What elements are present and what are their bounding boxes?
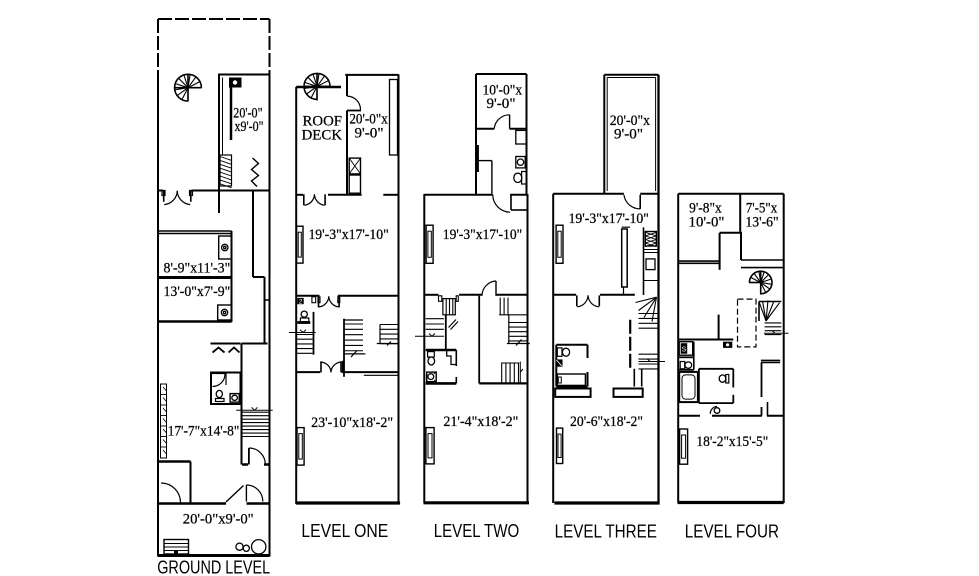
svg-text:19'-3"x17'-10": 19'-3"x17'-10" <box>569 211 649 227</box>
svg-text:LEVEL ONE: LEVEL ONE <box>301 521 388 541</box>
svg-text:13'-6": 13'-6" <box>745 215 778 231</box>
svg-text:LEVEL TWO: LEVEL TWO <box>434 521 520 541</box>
svg-text:19'-3"x17'-10": 19'-3"x17'-10" <box>443 227 522 243</box>
svg-text:x9'-0": x9'-0" <box>235 119 264 135</box>
svg-text:23'-10"x18'-2": 23'-10"x18'-2" <box>311 415 393 431</box>
svg-text:18'-2"x15'-5": 18'-2"x15'-5" <box>696 434 768 450</box>
svg-text:21'-4"x18'-2": 21'-4"x18'-2" <box>443 414 518 430</box>
svg-text:19'-3"x17'-10": 19'-3"x17'-10" <box>308 227 388 243</box>
svg-text:DECK: DECK <box>302 127 343 143</box>
svg-text:S: S <box>682 347 687 354</box>
svg-text:9'-0": 9'-0" <box>487 96 516 112</box>
svg-text:8'-9"x11'-3": 8'-9"x11'-3" <box>164 261 231 277</box>
svg-text:13'-0"x7'-9": 13'-0"x7'-9" <box>164 284 231 300</box>
svg-text:20'-0"x9'-0": 20'-0"x9'-0" <box>183 511 254 527</box>
svg-text:LEVEL FOUR: LEVEL FOUR <box>685 522 779 542</box>
svg-text:9'-0": 9'-0" <box>614 127 643 143</box>
svg-text:17'-7"x14'-8": 17'-7"x14'-8" <box>168 423 240 439</box>
svg-text:10'-0": 10'-0" <box>689 215 725 231</box>
svg-text:20'-6"x18'-2": 20'-6"x18'-2" <box>570 414 643 430</box>
svg-text:2: 2 <box>299 298 303 305</box>
svg-text:9'-0": 9'-0" <box>355 126 384 142</box>
svg-text:LEVEL THREE: LEVEL THREE <box>555 522 657 542</box>
svg-text:GROUND LEVEL: GROUND LEVEL <box>157 558 270 576</box>
